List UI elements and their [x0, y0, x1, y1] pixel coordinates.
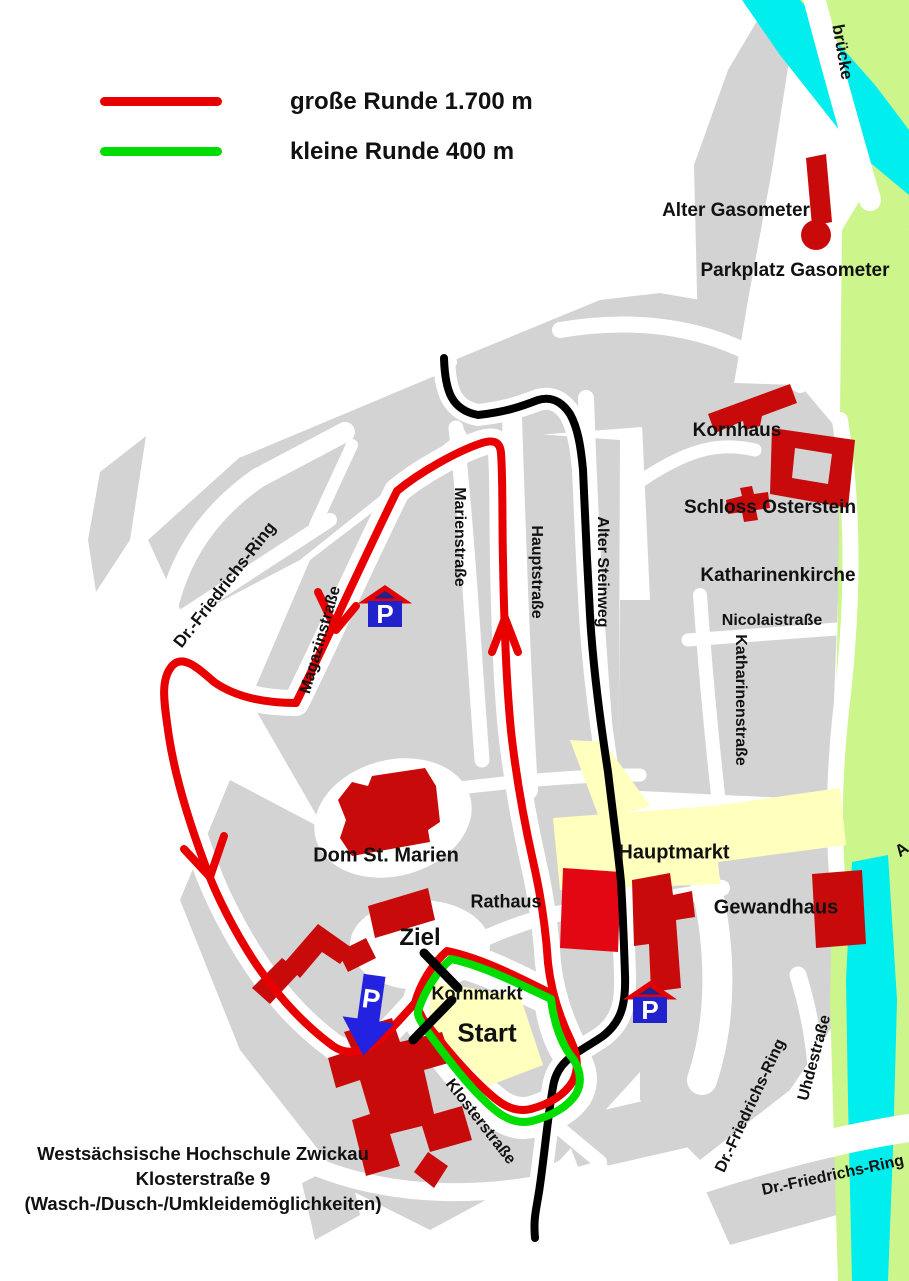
venue-address: Westsächsische Hochschule Zwickau Kloste…	[8, 1142, 398, 1217]
city-route-map: P P P brückeAlter GasometerParkplatz Gas…	[0, 0, 909, 1281]
venue-street: Klosterstraße 9	[8, 1167, 398, 1192]
building-alter-gasometer	[801, 154, 832, 250]
legend-row-grosse-runde: große Runde 1.700 m	[100, 88, 533, 116]
venue-name: Westsächsische Hochschule Zwickau	[8, 1142, 398, 1167]
city-block	[88, 436, 146, 592]
venue-facilities: (Wasch-/Dusch-/Umkleidemöglichkeiten)	[8, 1192, 398, 1217]
legend-row-kleine-runde: kleine Runde 400 m	[100, 138, 533, 166]
grosse-runde-line-swatch	[100, 97, 222, 107]
route-legend: große Runde 1.700 m kleine Runde 400 m	[100, 88, 533, 188]
legend-label-kleine-runde: kleine Runde 400 m	[290, 138, 514, 166]
kleine-runde-line-swatch	[100, 147, 222, 157]
svg-text:P: P	[641, 995, 658, 1025]
legend-label-grosse-runde: große Runde 1.700 m	[290, 88, 533, 116]
parking-garage-icon: P	[631, 984, 669, 1025]
parking-garage-icon: P	[366, 588, 404, 629]
building-east-block	[812, 870, 866, 948]
street-gewandhaus-east	[702, 880, 717, 1080]
map-graphic: P P P	[0, 0, 909, 1281]
svg-text:P: P	[376, 599, 393, 629]
building-rathaus-block	[560, 868, 621, 952]
